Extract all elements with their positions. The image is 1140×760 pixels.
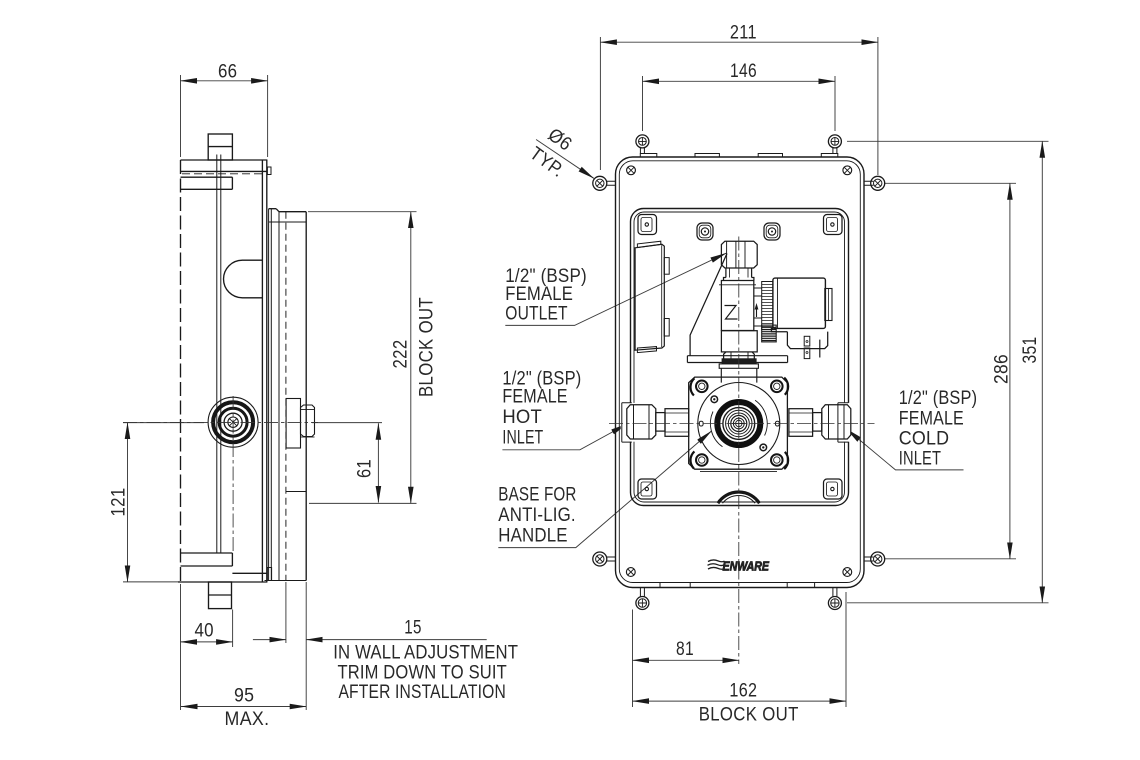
svg-text:66: 66	[218, 62, 238, 83]
svg-text:COLD: COLD	[899, 429, 949, 450]
svg-text:1/2" (BSP): 1/2" (BSP)	[899, 388, 977, 409]
svg-text:TRIM DOWN TO SUIT: TRIM DOWN TO SUIT	[337, 663, 507, 684]
svg-text:FEMALE: FEMALE	[502, 387, 567, 408]
svg-text:FEMALE: FEMALE	[505, 284, 573, 305]
svg-text:286: 286	[992, 354, 1013, 384]
svg-text:BLOCK OUT: BLOCK OUT	[699, 705, 799, 726]
svg-text:INLET: INLET	[899, 449, 941, 470]
svg-text:351: 351	[1020, 337, 1041, 364]
svg-text:HOT: HOT	[502, 407, 542, 428]
svg-text:BASE FOR: BASE FOR	[498, 485, 576, 506]
svg-text:BLOCK OUT: BLOCK OUT	[417, 297, 438, 397]
svg-text:FEMALE: FEMALE	[899, 409, 964, 430]
svg-text:AFTER INSTALLATION: AFTER INSTALLATION	[338, 682, 506, 703]
svg-text:OUTLET: OUTLET	[505, 304, 568, 325]
svg-text:61: 61	[355, 459, 376, 478]
svg-text:ANTI-LIG.: ANTI-LIG.	[498, 505, 576, 526]
svg-text:IN WALL ADJUSTMENT: IN WALL ADJUSTMENT	[333, 643, 518, 664]
svg-text:15: 15	[404, 618, 422, 639]
svg-text:40: 40	[194, 621, 214, 642]
svg-text:ENWARE: ENWARE	[723, 559, 770, 574]
svg-text:222: 222	[391, 340, 412, 369]
svg-text:121: 121	[109, 488, 130, 517]
svg-text:MAX.: MAX.	[225, 709, 270, 730]
svg-text:HANDLE: HANDLE	[498, 526, 567, 547]
svg-text:146: 146	[730, 61, 757, 82]
svg-text:81: 81	[676, 639, 694, 660]
svg-text:211: 211	[730, 23, 757, 44]
svg-text:95: 95	[234, 686, 255, 707]
svg-text:162: 162	[729, 681, 757, 702]
svg-text:INLET: INLET	[502, 428, 543, 449]
